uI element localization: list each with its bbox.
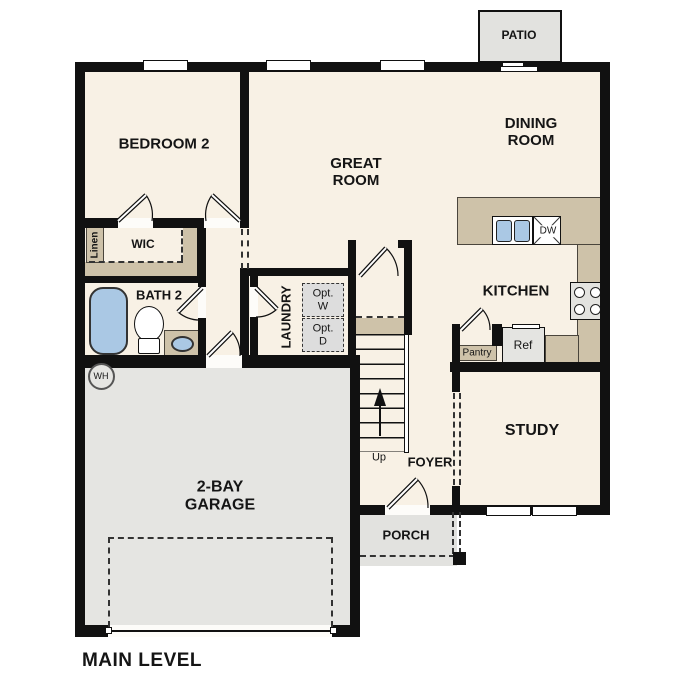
kitchen-label: KITCHEN — [456, 282, 576, 299]
vanity-sink — [171, 336, 194, 352]
kitchen-counter-bottom — [545, 335, 579, 363]
stairs-landing-dashed-line — [356, 316, 404, 318]
bedroom-wic-door-opening — [118, 218, 153, 228]
wall-study-left-upper — [452, 372, 460, 392]
stairs-railing — [404, 334, 409, 453]
wic-shelf-right — [183, 227, 198, 262]
wall-hall-right — [240, 270, 249, 355]
garage-door-panel — [108, 630, 332, 632]
optional-dryer-label: Opt. D — [313, 322, 334, 347]
optional-washer-label: Opt. W — [313, 287, 334, 312]
refrigerator-handle — [512, 324, 540, 329]
garage-entry-door-opening — [206, 355, 242, 368]
patio-sliding-door-leaf — [502, 62, 524, 67]
great-room-window-1 — [266, 60, 311, 71]
wall-stairs-right — [404, 240, 412, 335]
front-door-opening — [385, 505, 430, 515]
garage-door-track-left-end — [105, 627, 112, 634]
wall-bedroom-right — [240, 62, 249, 228]
burner-3 — [574, 304, 585, 315]
foyer-label: FOYER — [408, 456, 453, 471]
hall-great-room-opening-2 — [247, 229, 249, 269]
great-room-window-2 — [380, 60, 425, 71]
wall-wic-hall — [197, 228, 206, 276]
kitchen-sink-basin-left — [496, 220, 512, 242]
study-window-2 — [532, 506, 577, 516]
wall-pantry-left — [452, 324, 460, 362]
porch-edge-bottom — [360, 555, 455, 557]
garage-door-track-right-end — [330, 627, 337, 634]
bath2-label: BATH 2 — [119, 289, 199, 304]
foyer-study-opening-2 — [459, 393, 461, 485]
study-label: STUDY — [505, 422, 559, 440]
porch-edge-right-2 — [459, 512, 461, 554]
stairs-landing — [356, 318, 404, 334]
patio-label: PATIO — [502, 29, 537, 43]
laundry-door-opening — [250, 287, 258, 317]
garage-track-top — [108, 537, 332, 539]
wall-pantry-right — [492, 324, 502, 346]
dining-room-label: DINING ROOM — [505, 115, 558, 150]
pantry-label: Pantry — [463, 347, 492, 359]
laundry-label: LAUNDRY — [280, 285, 295, 348]
wall-wic-bath — [85, 276, 198, 283]
garage-track-right — [331, 537, 333, 627]
refrigerator-label: Ref — [514, 339, 533, 353]
wall-garage-right — [350, 360, 360, 637]
wall-kitchen-study — [450, 362, 610, 372]
study-window-1 — [486, 506, 531, 516]
porch-label: PORCH — [383, 529, 430, 544]
wic-rod-dashed-line-right — [181, 230, 183, 261]
stairs-up-label: Up — [372, 452, 386, 465]
linen-label: Linen — [89, 232, 101, 259]
porch-post — [453, 552, 466, 565]
hall-great-room-opening — [241, 229, 243, 269]
garage-label: 2-BAY GARAGE — [185, 479, 255, 516]
bedroom2-label: BEDROOM 2 — [94, 135, 234, 152]
wall-study-left-lower — [452, 486, 460, 507]
wic-label: WIC — [131, 238, 154, 252]
wall-right — [600, 62, 610, 515]
level-title: MAIN LEVEL — [82, 650, 202, 672]
porch-edge-right-1 — [452, 512, 454, 554]
bedroom-hall-door-opening — [204, 218, 240, 228]
floor-plan: PATIO BEDROOM 2 GREAT ROOM DINING ROOM K… — [0, 0, 687, 687]
dishwasher-label: DW — [539, 225, 558, 237]
toilet-tank — [138, 338, 160, 354]
foyer-study-opening — [453, 393, 455, 485]
wall-laundry-top — [240, 268, 356, 276]
stairs-treads — [356, 334, 404, 452]
kitchen-sink-basin-right — [514, 220, 530, 242]
wall-left — [75, 62, 85, 637]
toilet-bowl — [134, 306, 164, 342]
water-heater-label: WH — [94, 371, 109, 381]
wall-stairs-left — [348, 240, 356, 355]
garage-track-left — [108, 537, 110, 627]
wic-rod-dashed-line — [89, 261, 183, 263]
great-room-label: GREAT ROOM — [330, 155, 381, 190]
bedroom-window — [143, 60, 188, 71]
bath-door-opening — [198, 287, 206, 318]
